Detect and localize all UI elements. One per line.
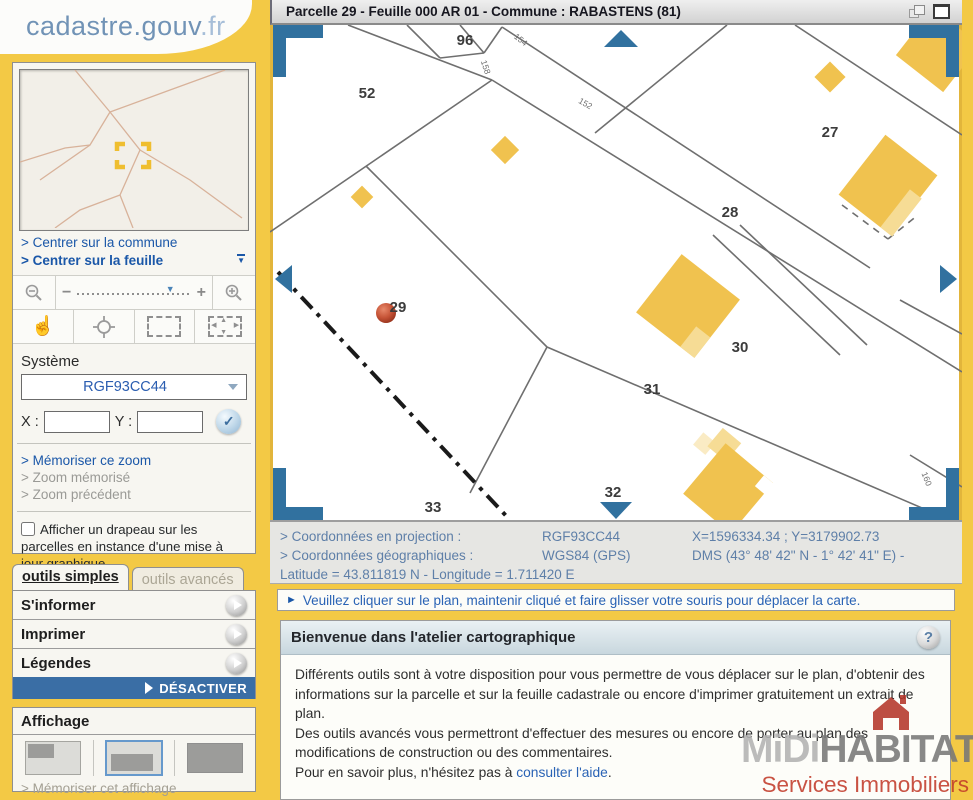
welcome-header: Bienvenue dans l'atelier cartographique … — [281, 621, 950, 655]
collapse-icon[interactable]: ▼ — [237, 254, 245, 265]
parcel-number-label: 30 — [732, 339, 749, 356]
instruction-bar: ► Veuillez cliquer sur le plan, mainteni… — [277, 589, 955, 611]
y-label: Y : — [115, 414, 132, 430]
tool-imprimer-label: Imprimer — [21, 626, 85, 643]
maximize-window-icon[interactable] — [933, 4, 950, 19]
tool-sinformer-label: S'informer — [21, 597, 95, 614]
link-center-feuille[interactable]: > Centrer sur la feuille — [21, 253, 163, 268]
pan-rect-icon: ▲▼◀▶ — [208, 316, 242, 337]
welcome-panel: Bienvenue dans l'atelier cartographique … — [280, 620, 951, 800]
logo-tld-text: .fr — [200, 11, 226, 41]
projection-system-select[interactable]: RGF93CC44 — [21, 374, 247, 400]
welcome-paragraph-1: Différents outils sont à votre dispositi… — [295, 665, 936, 724]
divider — [13, 734, 255, 735]
parcel-number-label: 33 — [425, 499, 442, 516]
help-sentence-prefix: Pour en savoir plus, n'hésitez pas à — [295, 765, 516, 780]
nav-arrow-right-icon — [940, 265, 957, 293]
flag-checkbox[interactable] — [21, 522, 35, 536]
zoom-plus-button[interactable]: + — [197, 286, 206, 300]
parcel-number-label: 27 — [822, 124, 839, 141]
chevron-right-icon — [145, 682, 153, 694]
zoom-slider-bar: − ▼ + — [13, 275, 255, 310]
projection-label: > Coordonnées en projection : — [280, 527, 542, 546]
nav-arrow-up-icon — [604, 30, 638, 47]
map-frame-edge — [959, 25, 962, 520]
map-titlebar: Parcelle 29 - Feuille 000 AR 01 - Commun… — [270, 0, 962, 25]
layout-option-2-selected[interactable] — [93, 740, 174, 776]
zoom-slider-track[interactable]: − ▼ + — [55, 276, 213, 309]
pan-hand-tool[interactable]: ☝ — [13, 310, 74, 343]
zoom-rectangle-tool[interactable] — [135, 310, 196, 343]
link-center-commune[interactable]: > Centrer sur la commune — [21, 235, 255, 250]
projection-system: RGF93CC44 — [542, 527, 692, 546]
restore-window-icon[interactable] — [909, 5, 925, 19]
map-title: Parcelle 29 - Feuille 000 AR 01 - Commun… — [272, 4, 909, 19]
boundary-measure-label: 160 — [919, 470, 934, 487]
nav-corner-top-left-icon — [273, 25, 323, 77]
geographic-label: > Coordonnées géographiques : — [280, 546, 542, 565]
x-label: X : — [21, 414, 39, 430]
play-icon — [226, 595, 247, 616]
map-window: Parcelle 29 - Feuille 000 AR 01 - Commun… — [270, 0, 962, 800]
xy-coordinate-entry: X : Y : ✓ — [21, 409, 247, 434]
tab-outils-simples[interactable]: outils simples — [12, 564, 129, 590]
nav-arrow-down-icon — [600, 502, 632, 519]
hand-pointer-icon: ☝ — [31, 317, 55, 336]
zoom-minus-button[interactable]: − — [62, 286, 71, 300]
sidebar: cadastre.gouv.fr > Centrer sur la commun — [0, 0, 266, 800]
y-input[interactable] — [137, 411, 203, 433]
display-title: Affichage — [21, 713, 255, 730]
cadastral-map[interactable]: 529627282930313233154158152160 — [270, 25, 962, 520]
welcome-body: Différents outils sont à votre dispositi… — [281, 655, 950, 782]
minimap-view-indicator — [117, 144, 149, 167]
parcel-number-label: 29 — [390, 299, 407, 316]
logo-main-text: cadastre.gouv — [26, 11, 200, 41]
geographic-values: DMS (43° 48' 42" N - 1° 42' 41" E) - — [692, 546, 952, 565]
simple-tools-panel: S'informer Imprimer Légendes DÉSACTIVER — [12, 590, 256, 699]
nav-corner-bottom-left-icon — [273, 468, 323, 520]
link-previous-zoom: > Zoom précédent — [21, 487, 255, 502]
cadastre-page: { "brand": { "logo_main": "cadastre.gouv… — [0, 0, 973, 800]
site-logo[interactable]: cadastre.gouv.fr — [26, 11, 226, 42]
parcel-labels: 529627282930313233154158152160 — [359, 31, 935, 516]
layout-thumbnail-icon — [105, 740, 163, 776]
layout-thumbnail-icon — [187, 743, 243, 773]
boundary-measure-label: 152 — [577, 96, 595, 112]
tool-imprimer[interactable]: Imprimer — [13, 619, 255, 648]
zoom-slider-thumb[interactable]: ▼ — [166, 284, 175, 294]
layout-option-1[interactable] — [13, 740, 93, 776]
nav-corners[interactable] — [273, 25, 959, 520]
help-icon[interactable]: ? — [917, 626, 940, 649]
chevron-down-icon — [228, 384, 238, 390]
nav-corner-bottom-right-icon — [909, 468, 959, 520]
zoom-memory-links: > Mémoriser ce zoom > Zoom mémorisé > Zo… — [13, 453, 255, 502]
crosshair-icon — [92, 315, 116, 339]
tool-legendes[interactable]: Légendes — [13, 648, 255, 677]
logo-header: cadastre.gouv.fr — [0, 0, 252, 54]
lat-lon-values: Latitude = 43.811819 N - Longitude = 1.7… — [280, 565, 952, 584]
welcome-title: Bienvenue dans l'atelier cartographique — [291, 629, 575, 646]
link-memorized-zoom: > Zoom mémorisé — [21, 470, 255, 485]
display-panel: Affichage > Mémoriser cet affichage — [12, 707, 256, 792]
overview-minimap[interactable] — [19, 69, 249, 231]
zoom-out-magnifier-icon[interactable] — [13, 276, 55, 309]
projection-system-value: RGF93CC44 — [22, 379, 228, 395]
link-memorize-display[interactable]: > Mémoriser cet affichage — [21, 781, 255, 796]
geographic-system: WGS84 (GPS) — [542, 546, 692, 565]
center-target-tool[interactable] — [74, 310, 135, 343]
pan-extent-tool[interactable]: ▲▼◀▶ — [195, 310, 255, 343]
x-input[interactable] — [44, 411, 110, 433]
projection-values: X=1596334.34 ; Y=3179902.73 — [692, 527, 952, 546]
help-sentence-suffix: . — [608, 765, 612, 780]
map-tools-panel: > Centrer sur la commune > Centrer sur l… — [12, 62, 256, 554]
validate-coordinates-button[interactable]: ✓ — [216, 409, 241, 434]
welcome-paragraph-3: Pour en savoir plus, n'hésitez pas à con… — [295, 763, 936, 783]
tool-sinformer[interactable]: S'informer — [13, 591, 255, 619]
coordinates-readout: > Coordonnées en projection : RGF93CC44 … — [270, 520, 962, 584]
parcel-number-label: 96 — [457, 32, 474, 49]
nav-arrow-left-icon — [275, 265, 292, 293]
parcel-number-label: 32 — [605, 484, 622, 501]
system-label: Système — [21, 353, 255, 370]
layout-options — [13, 740, 255, 776]
parcel-number-label: 28 — [722, 204, 739, 221]
play-icon — [226, 624, 247, 645]
link-memorize-zoom[interactable]: > Mémoriser ce zoom — [21, 453, 255, 468]
consult-help-link[interactable]: consulter l'aide — [516, 765, 608, 780]
instruction-arrow-icon: ► — [286, 594, 297, 606]
parcel-number-label: 31 — [644, 381, 661, 398]
welcome-paragraph-2: Des outils avancés vous permettront d'ef… — [295, 724, 936, 763]
tools-tabs: outils simples outils avancés — [12, 564, 244, 590]
zoom-dotted-scale[interactable]: ▼ — [77, 287, 190, 299]
map-tool-buttons: ☝ ▲▼◀▶ — [13, 310, 255, 344]
selection-rect-icon — [147, 316, 181, 337]
layout-thumbnail-icon — [25, 741, 81, 775]
deactivate-label: DÉSACTIVER — [159, 681, 247, 696]
minimap-graphic — [20, 70, 246, 228]
layout-option-3[interactable] — [174, 740, 255, 776]
tab-outils-avances[interactable]: outils avancés — [132, 567, 244, 590]
divider — [17, 443, 251, 444]
boundary-measure-label: 154 — [512, 31, 530, 48]
play-icon — [226, 653, 247, 674]
tool-legendes-label: Légendes — [21, 655, 91, 672]
instruction-text: Veuillez cliquer sur le plan, maintenir … — [303, 593, 861, 608]
parcel-number-label: 52 — [359, 85, 376, 102]
deactivate-button[interactable]: DÉSACTIVER — [13, 677, 255, 699]
divider — [17, 511, 251, 512]
nav-arrows[interactable] — [275, 30, 957, 519]
map-frame-edge — [270, 25, 273, 520]
boundary-measure-label: 158 — [479, 59, 493, 76]
zoom-in-magnifier-icon[interactable] — [213, 276, 255, 309]
